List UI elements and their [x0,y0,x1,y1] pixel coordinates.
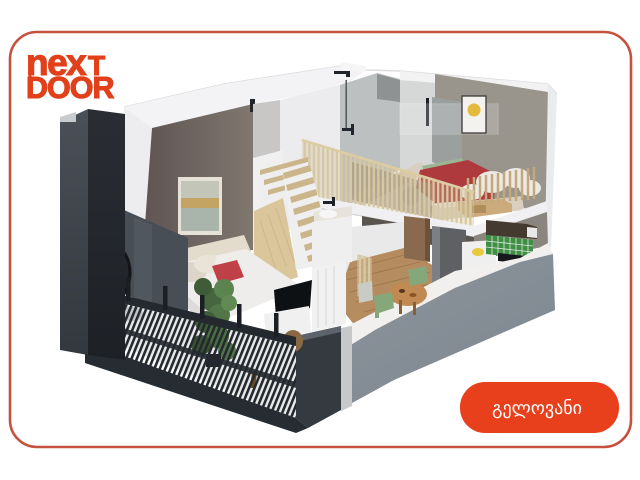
svg-text:DOOR: DOOR [26,71,114,105]
svg-text:გელოვანი: გელოვანი [492,398,582,419]
